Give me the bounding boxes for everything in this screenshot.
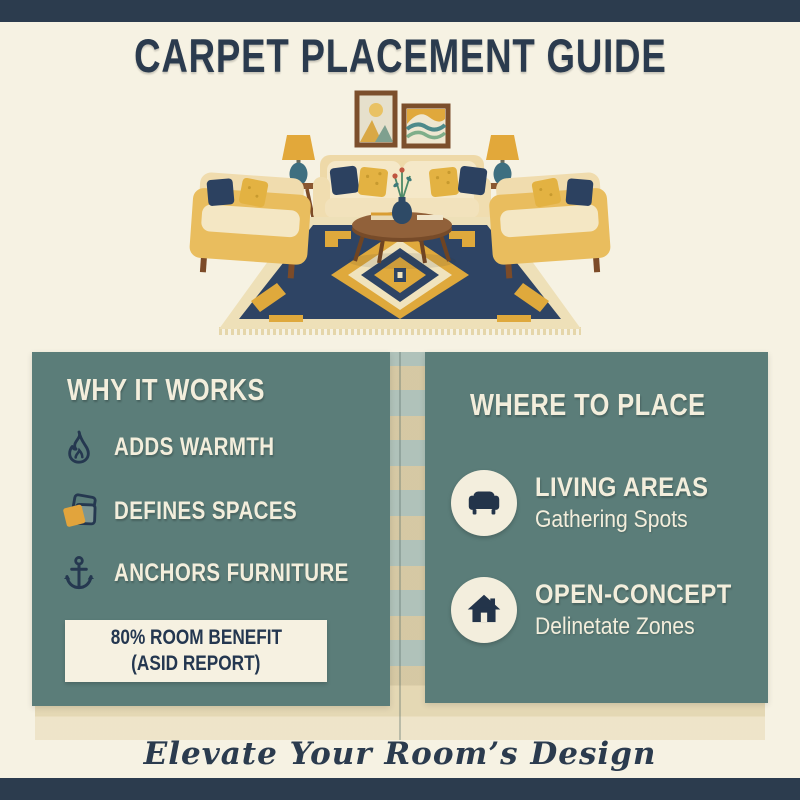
place-title: LIVING AREAS <box>535 472 732 503</box>
place-item-open-concept: OPEN-CONCEPT Delinetate Zones <box>451 577 759 643</box>
benefit-item-adds-warmth: ADDS WARMTH <box>60 428 310 466</box>
benefit-label: ADDS WARMTH <box>114 433 275 462</box>
page-title: CARPET PLACEMENT GUIDE <box>0 28 800 83</box>
page-title-text: CARPET PLACEMENT GUIDE <box>134 28 666 83</box>
stat-box: 80% ROOM BENEFIT (ASID REPORT) <box>65 620 327 682</box>
place-item-living-areas: LIVING AREAS Gathering Spots <box>451 470 732 536</box>
why-it-works-panel: WHY IT WORKS ADDS WARMTH DEFINES SPACES <box>32 352 390 706</box>
footer-tagline: Elevate Your Room’s Design <box>0 736 800 772</box>
anchor-icon <box>60 554 98 592</box>
benefit-label: DEFINES SPACES <box>114 497 297 526</box>
benefit-item-defines-spaces: DEFINES SPACES <box>60 492 337 530</box>
stat-line-1: 80% ROOM BENEFIT <box>92 625 301 651</box>
place-text: OPEN-CONCEPT Delinetate Zones <box>535 579 759 641</box>
place-text: LIVING AREAS Gathering Spots <box>535 472 732 534</box>
layers-icon <box>60 492 98 530</box>
why-it-works-heading: WHY IT WORKS <box>67 372 308 408</box>
side-sofa-left <box>188 171 313 279</box>
side-sofa-right <box>487 171 612 279</box>
benefit-item-anchors-furniture: ANCHORS FURNITURE <box>60 554 400 592</box>
place-subtitle: Gathering Spots <box>535 506 732 534</box>
living-room-illustration <box>145 78 655 344</box>
stat-line-2: (ASID REPORT) <box>117 651 275 677</box>
benefit-label: ANCHORS FURNITURE <box>114 559 349 588</box>
house-icon <box>451 577 517 643</box>
place-title: OPEN-CONCEPT <box>535 579 759 610</box>
where-to-place-heading: WHERE TO PLACE <box>470 387 757 423</box>
wall-art-frames <box>357 93 448 146</box>
sofa-icon <box>451 470 517 536</box>
flame-icon <box>60 428 98 466</box>
top-border-bar <box>0 0 800 22</box>
bottom-border-bar <box>0 778 800 800</box>
place-subtitle: Delinetate Zones <box>535 613 759 641</box>
where-to-place-panel: WHERE TO PLACE LIVING AREAS Gathering Sp… <box>425 352 768 703</box>
